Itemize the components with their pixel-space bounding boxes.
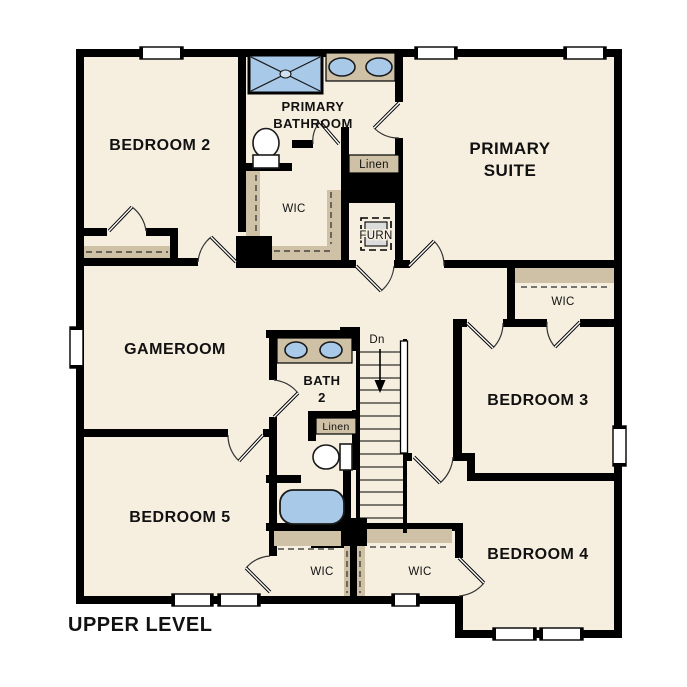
- window: [392, 594, 419, 606]
- wall-segment: [84, 429, 228, 437]
- wall-segment: [467, 473, 614, 481]
- shower: [249, 55, 322, 93]
- wall-segment: [292, 140, 313, 148]
- label-bedroom5: BEDROOM 5: [129, 509, 230, 526]
- floor-plan-drawing: BEDROOM 2 PRIMARY BATHROOM PRIMARY SUITE…: [0, 0, 687, 687]
- sink-basin: [320, 342, 342, 358]
- primary-wic-shelf-left: [246, 171, 260, 236]
- window: [218, 594, 260, 606]
- wall-segment: [341, 518, 367, 546]
- window: [540, 628, 583, 640]
- wall-segment: [269, 338, 277, 380]
- wall-segment: [503, 319, 547, 327]
- wall-segment: [263, 429, 277, 437]
- wall-segment: [236, 236, 272, 268]
- window: [613, 426, 626, 466]
- label-primary-suite-line1: PRIMARY: [469, 139, 550, 158]
- bedroom3-wic-shelf: [515, 268, 614, 283]
- wall-segment: [349, 173, 403, 203]
- label-bath2-linen: Linen: [322, 421, 349, 433]
- bathtub: [280, 490, 344, 524]
- window: [564, 47, 606, 59]
- label-bedroom3-wic: WIC: [551, 296, 574, 308]
- wall-segment: [580, 319, 614, 327]
- window: [493, 628, 536, 640]
- wall-segment: [84, 228, 107, 236]
- primary-wic-shelf-right: [327, 190, 341, 246]
- shower-drain: [280, 70, 291, 78]
- wall-segment: [453, 319, 462, 461]
- floor-plan-page: BEDROOM 2 PRIMARY BATHROOM PRIMARY SUITE…: [0, 0, 687, 687]
- primary-vanity: [326, 53, 395, 81]
- toilet-tank: [253, 155, 279, 168]
- wall-segment: [308, 411, 316, 441]
- wall-segment: [395, 57, 403, 102]
- label-primary-bathroom-line1: PRIMARY: [282, 99, 345, 114]
- label-bath2-line2: 2: [318, 390, 326, 405]
- label-furnace: FURN: [359, 230, 392, 242]
- bath2-vanity: [277, 338, 352, 363]
- primary-wic-shelf-bottom: [272, 246, 341, 260]
- window: [140, 47, 183, 59]
- window: [70, 327, 83, 368]
- wall-segment: [146, 228, 178, 236]
- sink-basin: [366, 58, 392, 76]
- toilet-tank: [340, 444, 352, 470]
- wall-segment: [266, 475, 301, 483]
- primary-toilet: [253, 129, 279, 169]
- wall-segment: [341, 127, 349, 268]
- label-bedroom5-wic: WIC: [310, 566, 333, 578]
- toilet-bowl: [253, 129, 279, 158]
- label-gameroom: GAMEROOM: [124, 341, 226, 358]
- stair-handrail-cap: [401, 341, 408, 453]
- label-stairs-down: Dn: [369, 334, 384, 346]
- label-bath2-line1: BATH: [303, 373, 340, 388]
- wall-segment: [84, 258, 198, 266]
- wic4-shelf-top: [367, 529, 452, 543]
- wic5-shelf-top: [274, 531, 341, 546]
- label-bedroom3: BEDROOM 3: [487, 392, 588, 409]
- label-primary-bathroom-line2: BATHROOM: [273, 116, 353, 131]
- label-bedroom4-wic: WIC: [408, 566, 431, 578]
- wall-segment: [455, 523, 463, 558]
- toilet-bowl: [313, 445, 339, 469]
- label-bedroom2: BEDROOM 2: [109, 137, 210, 154]
- window: [172, 594, 213, 606]
- wall-segment: [444, 260, 614, 268]
- window: [415, 47, 457, 59]
- label-primary-linen: Linen: [359, 159, 389, 171]
- wall-segment: [350, 546, 357, 596]
- stair-rail-left: [356, 339, 360, 533]
- wall-segment: [507, 260, 515, 327]
- wall-segment: [238, 57, 246, 232]
- sink-basin: [329, 58, 355, 76]
- plan-title: UPPER LEVEL: [68, 614, 212, 636]
- label-primary-wic: WIC: [282, 203, 305, 215]
- bath2-toilet: [313, 444, 352, 470]
- sink-basin: [285, 342, 307, 358]
- label-primary-suite-line2: SUITE: [484, 161, 537, 180]
- wic4-shelf-side: [357, 546, 365, 596]
- label-bedroom4: BEDROOM 4: [487, 546, 588, 563]
